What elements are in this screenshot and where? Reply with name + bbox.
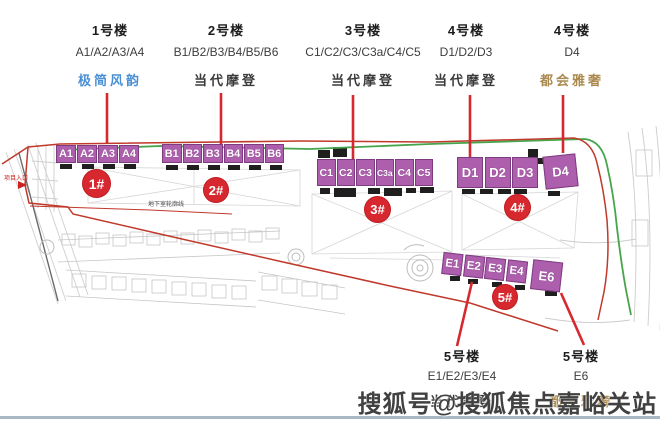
block-b4: B4 — [224, 144, 244, 163]
block-d1: D1 — [457, 157, 483, 188]
badge-5: 5# — [492, 284, 518, 310]
block-e2: E2 — [463, 254, 485, 278]
header-col-building4b: 4号楼 D4 都会雅奢 — [492, 20, 652, 89]
building-row-b: B1 B2 B3 B4 B5 B6 — [162, 144, 284, 163]
block-c4: C4 — [395, 159, 414, 186]
badge-1: 1# — [82, 169, 111, 198]
block-c3a: C3a — [376, 159, 395, 186]
building-units: B1/B2/B3/B4/B5/B6 — [146, 45, 306, 59]
building-units: D4 — [492, 45, 652, 59]
block-c5: C5 — [415, 159, 434, 186]
block-b2: B2 — [183, 144, 203, 163]
badge-2: 2# — [203, 177, 229, 203]
badge-4: 4# — [504, 194, 531, 221]
building-name: 5号楼 — [501, 346, 660, 365]
block-b5: B5 — [244, 144, 264, 163]
block-e6: E6 — [530, 259, 563, 292]
block-a2: A2 — [77, 145, 97, 163]
block-e1: E1 — [441, 252, 463, 276]
site-plan-infographic: 项目入口 地下室轮廓线 1号楼 A1/A2/A3/A4 极简风韵 2号楼 B1/… — [0, 0, 660, 423]
building-name: 4号楼 — [492, 20, 652, 39]
building-row-d: D1 D2 D3 — [457, 157, 538, 188]
block-b1: B1 — [162, 144, 182, 163]
block-a4: A4 — [119, 145, 139, 163]
sohu-watermark: 搜狐号@搜狐焦点嘉峪关站 — [358, 384, 657, 419]
building-style: 当代摩登 — [146, 70, 306, 89]
block-b6: B6 — [265, 144, 285, 163]
header-col-building2: 2号楼 B1/B2/B3/B4/B5/B6 当代摩登 — [146, 20, 306, 89]
block-b3: B3 — [203, 144, 223, 163]
building-units: E6 — [501, 369, 660, 383]
building-style: 都会雅奢 — [492, 70, 652, 89]
building-row-c: C1 C2 C3 C3a C4 C5 — [317, 159, 433, 186]
road-sketch-left — [6, 143, 88, 304]
block-c1: C1 — [317, 159, 336, 186]
badge-3: 3# — [364, 196, 391, 223]
building-name: 2号楼 — [146, 20, 306, 39]
basement-outline-label: 地下室轮廓线 — [148, 200, 184, 208]
block-a3: A3 — [98, 145, 118, 163]
block-d4: D4 — [542, 153, 578, 189]
block-e3: E3 — [484, 257, 506, 281]
block-a1: A1 — [56, 145, 76, 163]
block-d2: D2 — [485, 157, 511, 188]
block-e4: E4 — [505, 259, 527, 283]
building-row-a: A1 A2 A3 A4 — [56, 145, 139, 163]
block-d3: D3 — [512, 157, 538, 188]
entrance-label: 项目入口 — [4, 175, 28, 182]
block-c2: C2 — [337, 159, 356, 186]
block-c3: C3 — [356, 159, 375, 186]
